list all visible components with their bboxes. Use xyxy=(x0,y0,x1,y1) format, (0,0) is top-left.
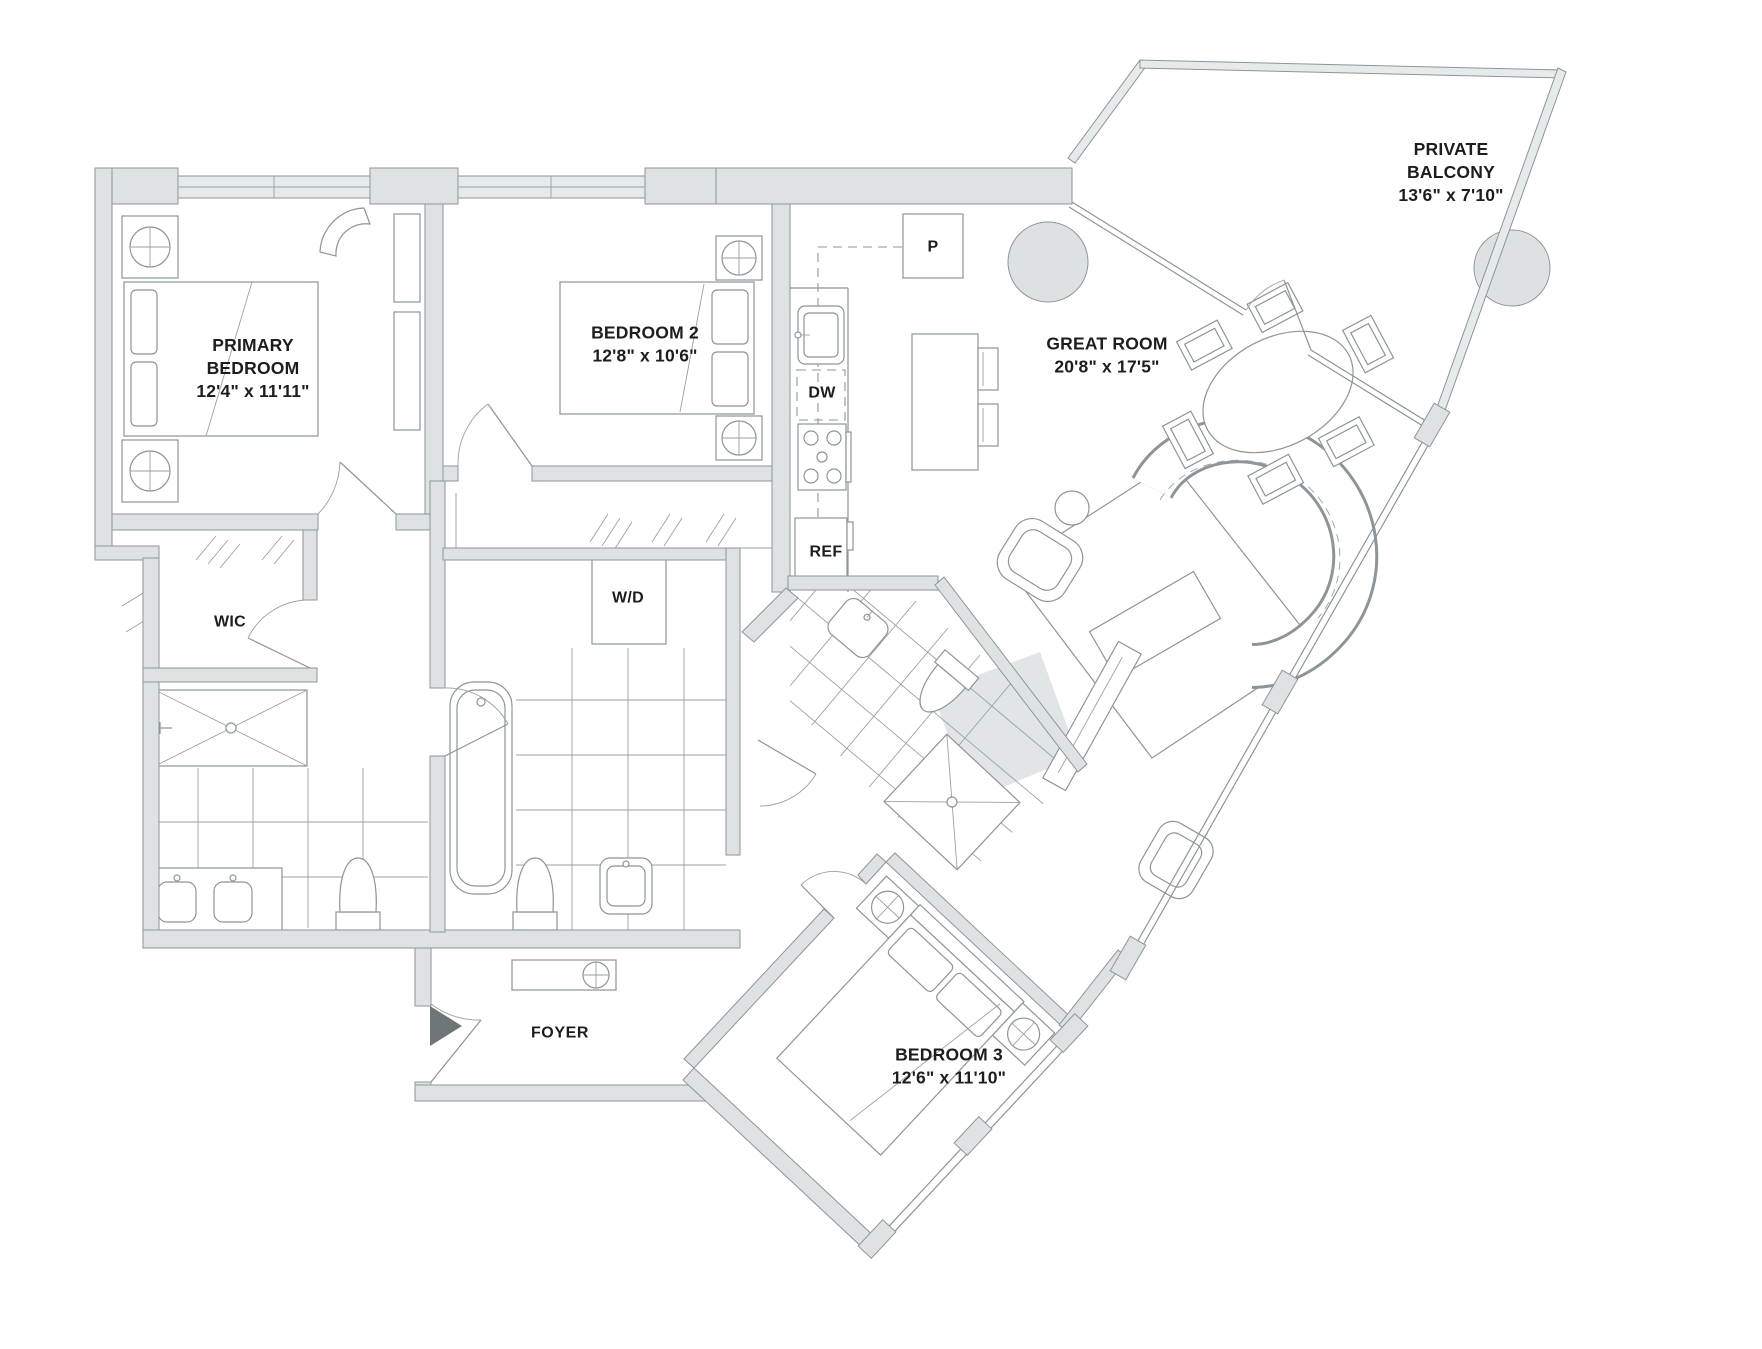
dresser xyxy=(394,214,420,302)
room-label-bedroom-2: BEDROOM 2 12'8" x 10'6" xyxy=(535,321,755,367)
label-dishwasher: DW xyxy=(808,384,835,405)
pillow xyxy=(131,362,157,426)
floor-plan: PRIMARY BEDROOM 12'4" x 11'11" BEDROOM 2… xyxy=(0,0,1762,1349)
room-name: PRIMARY BEDROOM xyxy=(207,335,300,378)
stool xyxy=(978,348,998,390)
label-washer-dryer: W/D xyxy=(612,589,644,610)
stool xyxy=(978,404,998,446)
accent-chair xyxy=(1133,816,1219,905)
pillow xyxy=(131,290,157,354)
room-name: GREAT ROOM xyxy=(1046,333,1167,353)
room-dimensions: 12'4" x 11'11" xyxy=(192,379,314,402)
room-label-primary-bedroom: PRIMARY BEDROOM 12'4" x 11'11" xyxy=(192,334,314,402)
room-name: BEDROOM 2 xyxy=(591,322,699,342)
room-dimensions: 12'8" x 10'6" xyxy=(535,344,755,367)
room-label-wic: WIC xyxy=(214,613,246,634)
round-column xyxy=(1008,222,1088,302)
balcony-wall xyxy=(1068,60,1147,163)
sink xyxy=(214,882,252,922)
room-label-great-room: GREAT ROOM 20'8" x 17'5" xyxy=(997,332,1217,378)
room-name: PRIVATE BALCONY xyxy=(1407,139,1495,182)
room-label-bedroom-3: BEDROOM 3 12'6" x 11'10" xyxy=(839,1043,1059,1089)
toilet xyxy=(336,858,380,930)
sink xyxy=(824,594,892,661)
label-refrigerator: REF xyxy=(810,543,843,564)
room-dimensions: 12'6" x 11'10" xyxy=(839,1066,1059,1089)
room-dimensions: 20'8" x 17'5" xyxy=(997,355,1217,378)
room-label-foyer: FOYER xyxy=(531,1024,589,1045)
room-label-private-balcony: PRIVATE BALCONY 13'6" x 7'10" xyxy=(1396,138,1506,206)
room-dimensions: 13'6" x 7'10" xyxy=(1396,183,1506,206)
balcony-wall xyxy=(1140,60,1562,78)
label-pantry: P xyxy=(928,238,939,259)
dresser xyxy=(394,312,420,430)
bedroom2-closet xyxy=(456,493,772,550)
sink xyxy=(158,882,196,922)
bedroom3-furniture xyxy=(745,875,1056,1185)
entry-arrow-icon xyxy=(430,1006,462,1046)
kitchen-island xyxy=(912,334,978,470)
room-name: BEDROOM 3 xyxy=(895,1044,1003,1064)
bathroom2 xyxy=(450,558,666,930)
primary-bathroom xyxy=(148,690,380,932)
side-table xyxy=(1055,491,1089,525)
balcony-wall xyxy=(1430,68,1566,430)
toilet xyxy=(513,858,557,930)
corner-chair xyxy=(320,208,370,256)
